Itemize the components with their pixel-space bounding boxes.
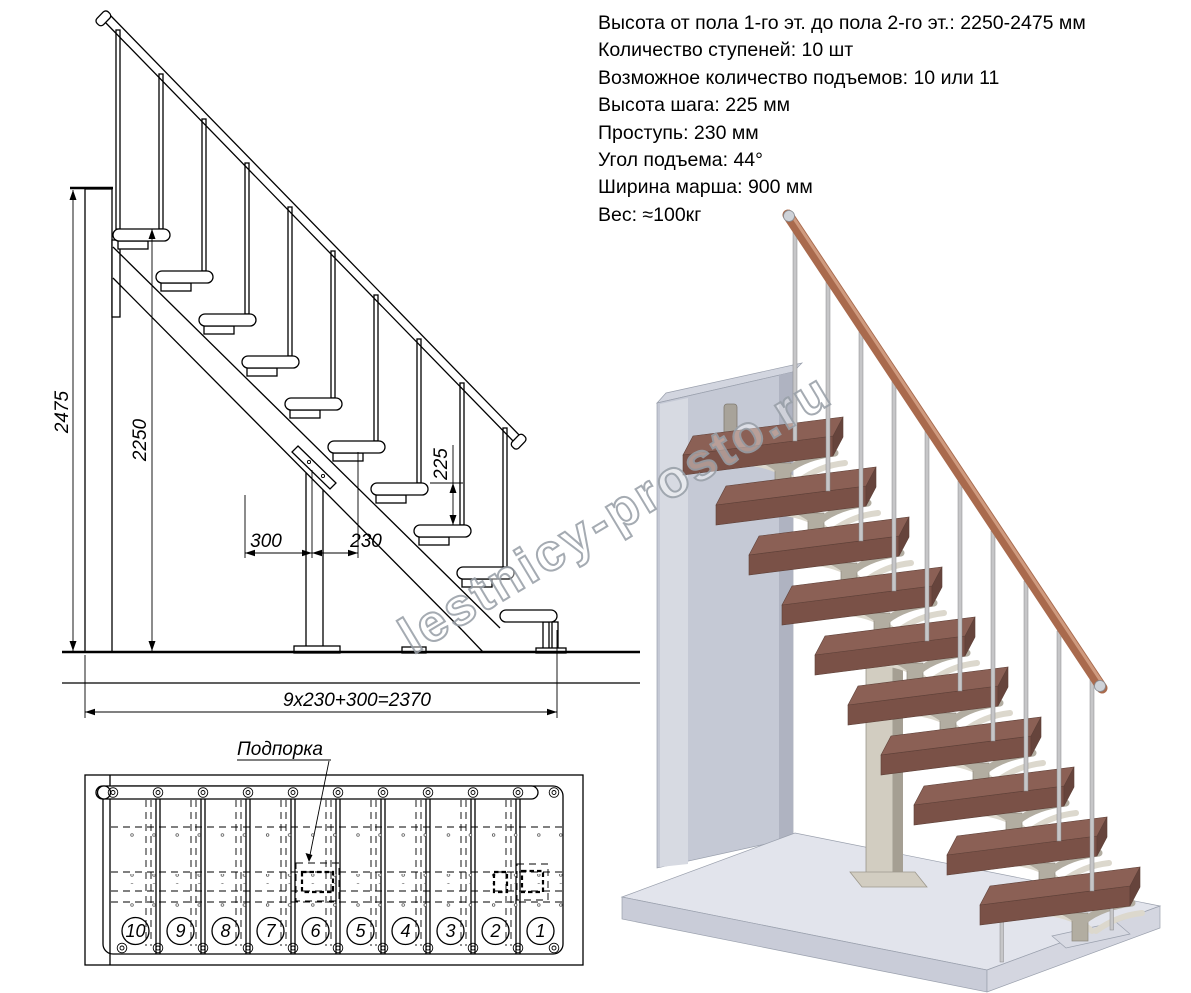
dim-step-rise: 225: [430, 445, 463, 525]
dim-total-run-label: 9x230+300=2370: [283, 690, 431, 711]
spec-line-width: Ширина марша: 900 мм: [598, 174, 1183, 201]
dim-230-label: 230: [349, 531, 382, 552]
step-number-3: 3: [445, 921, 455, 941]
floor-lines: [62, 652, 640, 683]
spec-line-tread-depth: Проступь: 230 мм: [598, 120, 1183, 147]
dim-2250-label: 2250: [130, 418, 151, 462]
spec-line-angle: Угол подъема: 44°: [598, 147, 1183, 174]
support-column-side: [292, 446, 340, 653]
step-number-6: 6: [310, 921, 321, 941]
stringer-plate: [292, 446, 336, 489]
plan-handrail: [96, 786, 559, 799]
step-number-2: 2: [489, 921, 500, 941]
spec-line-rise-count: Возможное количество подъемов: 10 или 11: [598, 65, 1183, 92]
step-number-7: 7: [265, 921, 276, 941]
rail-cap-bottom: [1095, 681, 1106, 692]
spec-text-block: Высота от пола 1-го эт. до пола 2-го эт.…: [598, 10, 1183, 229]
step-number-8: 8: [220, 921, 230, 941]
plan-step-numbers: 10 9 8 7 6 5 4 3 2 1: [122, 918, 554, 945]
rail-bottom-cap: [510, 433, 528, 451]
dim-total-height: 2475: [52, 190, 77, 651]
spec-line-weight: Вес: ≈100кг: [598, 202, 1183, 229]
spec-line-rise-height: Высота шага: 225 мм: [598, 92, 1183, 119]
plan-step-dividers: [156, 786, 520, 954]
step-number-9: 9: [175, 921, 185, 941]
stair-drawing-sheet: 2475 2250 225 300 230: [0, 0, 1191, 993]
step-number-5: 5: [355, 921, 366, 941]
rail-top-cap: [95, 9, 113, 27]
dim-total-run: 9x230+300=2370: [85, 630, 557, 718]
step-number-4: 4: [400, 921, 410, 941]
step-number-1: 1: [535, 921, 545, 941]
dim-225-label: 225: [431, 448, 452, 481]
support-callout: Подпорка: [237, 739, 331, 862]
spec-line-step-count: Количество ступеней: 10 шт: [598, 37, 1183, 64]
render-3d: [622, 211, 1160, 993]
step-number-10: 10: [125, 921, 145, 941]
balusters-side: [116, 30, 507, 567]
dim-2475-label: 2475: [52, 390, 73, 434]
spec-line-height-range: Высота от пола 1-го эт. до пола 2-го эт.…: [598, 10, 1183, 37]
plan-view: 10 9 8 7 6 5 4 3 2 1 Подпорка: [85, 739, 583, 965]
support-label: Подпорка: [237, 739, 323, 760]
dim-flight-height: 2250: [130, 229, 156, 651]
dim-300-label: 300: [250, 531, 282, 552]
elevation-view: 2475 2250 225 300 230: [52, 9, 640, 718]
wall-post: [85, 189, 112, 652]
